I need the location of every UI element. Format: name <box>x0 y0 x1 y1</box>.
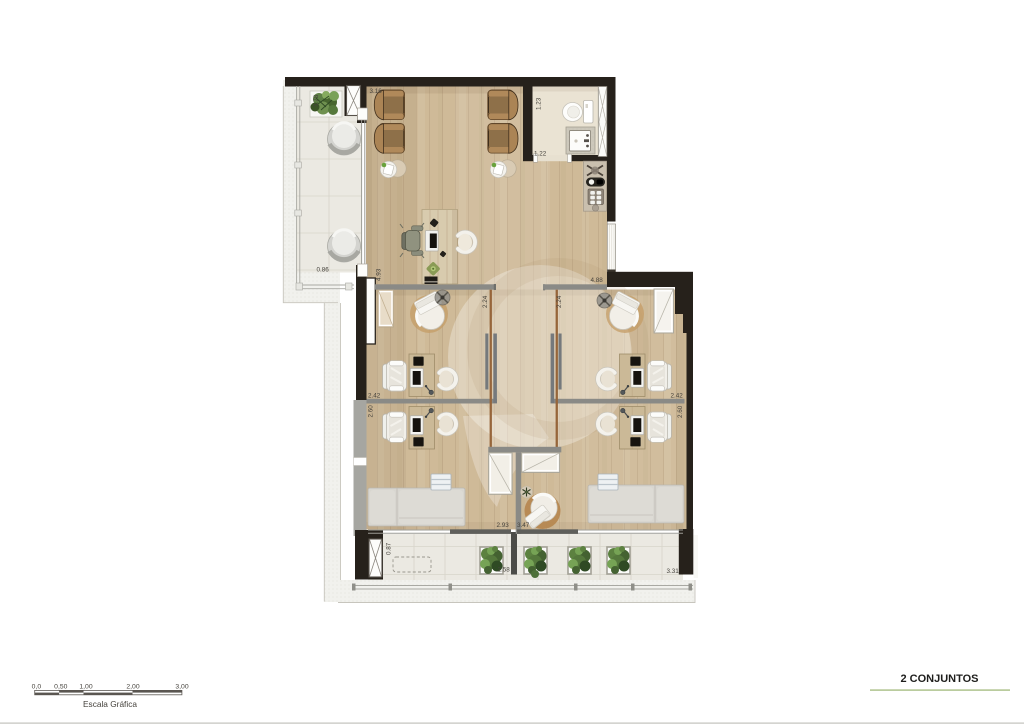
svg-text:0.86: 0.86 <box>317 267 330 274</box>
svg-text:3.31: 3.31 <box>667 568 680 575</box>
svg-text:2,00: 2,00 <box>126 684 139 691</box>
svg-text:0,50: 0,50 <box>54 684 67 691</box>
svg-text:4.88: 4.88 <box>591 277 604 284</box>
svg-text:3.47: 3.47 <box>517 522 530 529</box>
svg-text:1.22: 1.22 <box>534 151 547 158</box>
svg-text:1.23: 1.23 <box>536 97 543 110</box>
svg-text:2.93: 2.93 <box>497 522 510 529</box>
svg-text:3,00: 3,00 <box>175 684 188 691</box>
svg-text:0.87: 0.87 <box>386 542 393 555</box>
svg-text:2.58: 2.58 <box>498 567 511 574</box>
svg-text:2.42: 2.42 <box>671 393 684 400</box>
svg-text:Escala Gráfica: Escala Gráfica <box>83 699 137 709</box>
svg-text:2.60: 2.60 <box>368 405 375 418</box>
svg-text:2.42: 2.42 <box>368 393 381 400</box>
svg-text:1,00: 1,00 <box>79 684 92 691</box>
svg-text:0,0: 0,0 <box>32 684 42 691</box>
svg-text:3.78: 3.78 <box>313 94 320 107</box>
svg-text:2.60: 2.60 <box>677 405 684 418</box>
svg-text:2.24: 2.24 <box>556 295 563 308</box>
svg-text:2.24: 2.24 <box>482 295 489 308</box>
svg-text:4.93: 4.93 <box>376 268 383 281</box>
svg-text:3.16: 3.16 <box>370 88 383 95</box>
svg-text:2 CONJUNTOS: 2 CONJUNTOS <box>900 673 978 685</box>
